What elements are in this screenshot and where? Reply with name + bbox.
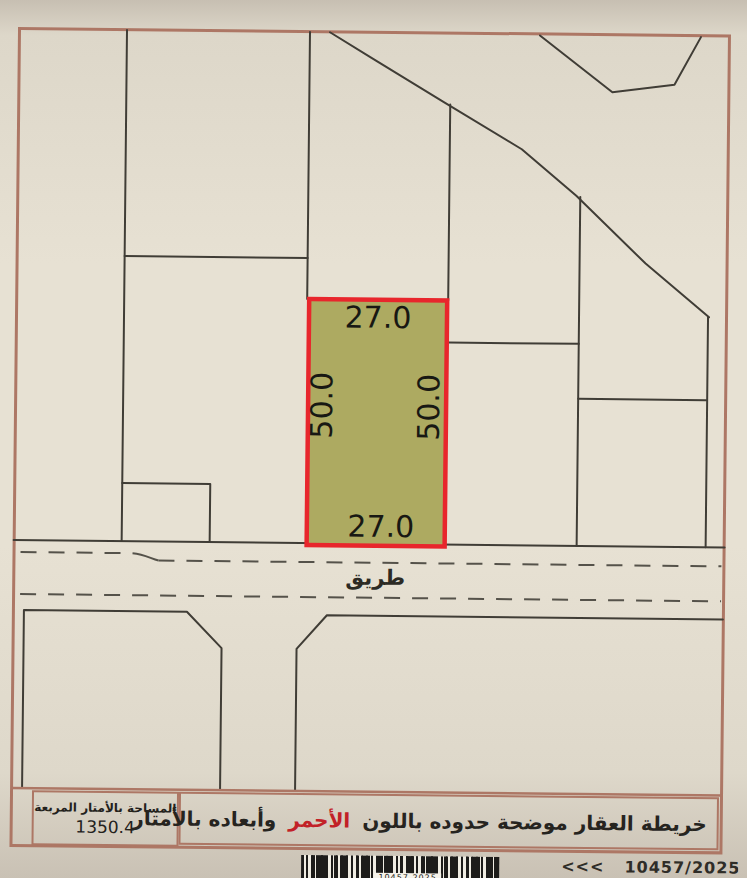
road-name-label: طريق xyxy=(335,566,415,590)
lower-right-block xyxy=(295,615,723,794)
plot-dimension-bottom: 27.0 xyxy=(340,509,422,543)
parcel-line-above-plot xyxy=(448,105,450,301)
parcel-line-left-vertical xyxy=(122,30,127,541)
area-value: 1350.4 xyxy=(75,816,135,837)
road-dash-upper-left xyxy=(21,552,133,553)
scanned-property-map-photo: 27.0 27.0 50.0 50.0 طريق المساحة بالأمتا… xyxy=(0,0,747,878)
parcel-line-frame-right-vertical xyxy=(706,317,708,547)
road-dash-lower xyxy=(20,594,721,601)
road-dash-connector xyxy=(132,553,158,560)
reference-number-line: <<< 10457/2025 >>> xyxy=(561,857,738,878)
ref-left-arrows: <<< xyxy=(561,857,604,876)
map-note-box: خريطة العقار موضحة حدوده باللون الأحمر و… xyxy=(178,792,719,851)
plot-dimension-top: 27.0 xyxy=(337,300,419,334)
ref-number: 10457/2025 xyxy=(624,857,738,877)
barcode-number-label: 10457 2025 xyxy=(374,873,441,878)
map-sheet: 27.0 27.0 50.0 50.0 طريق المساحة بالأمتا… xyxy=(0,0,747,878)
small-parcel-notch xyxy=(122,483,211,542)
top-notch-boundary xyxy=(539,35,701,93)
parcel-line-right-of-plot xyxy=(449,343,579,344)
note-red-word: الأحمر xyxy=(288,807,350,832)
map-note-text: خريطة العقار موضحة حدوده باللون الأحمر و… xyxy=(132,806,707,836)
cadastral-map-drawing xyxy=(0,0,747,878)
lower-left-block xyxy=(22,610,222,789)
parcel-line-far-right-horizontal xyxy=(578,399,706,400)
parcel-line-right-vertical xyxy=(577,197,581,546)
plot-dimension-left: 50.0 xyxy=(304,345,341,465)
road-dash-upper-right xyxy=(158,560,721,566)
parcel-line-upper-horizontal xyxy=(125,256,308,258)
diagonal-boundary xyxy=(327,32,712,317)
plot-dimension-right: 50.0 xyxy=(411,347,448,467)
note-text-after: وأبعاده بالأمتار xyxy=(132,806,276,832)
note-text-before: خريطة العقار موضحة حدوده باللون xyxy=(362,808,707,836)
